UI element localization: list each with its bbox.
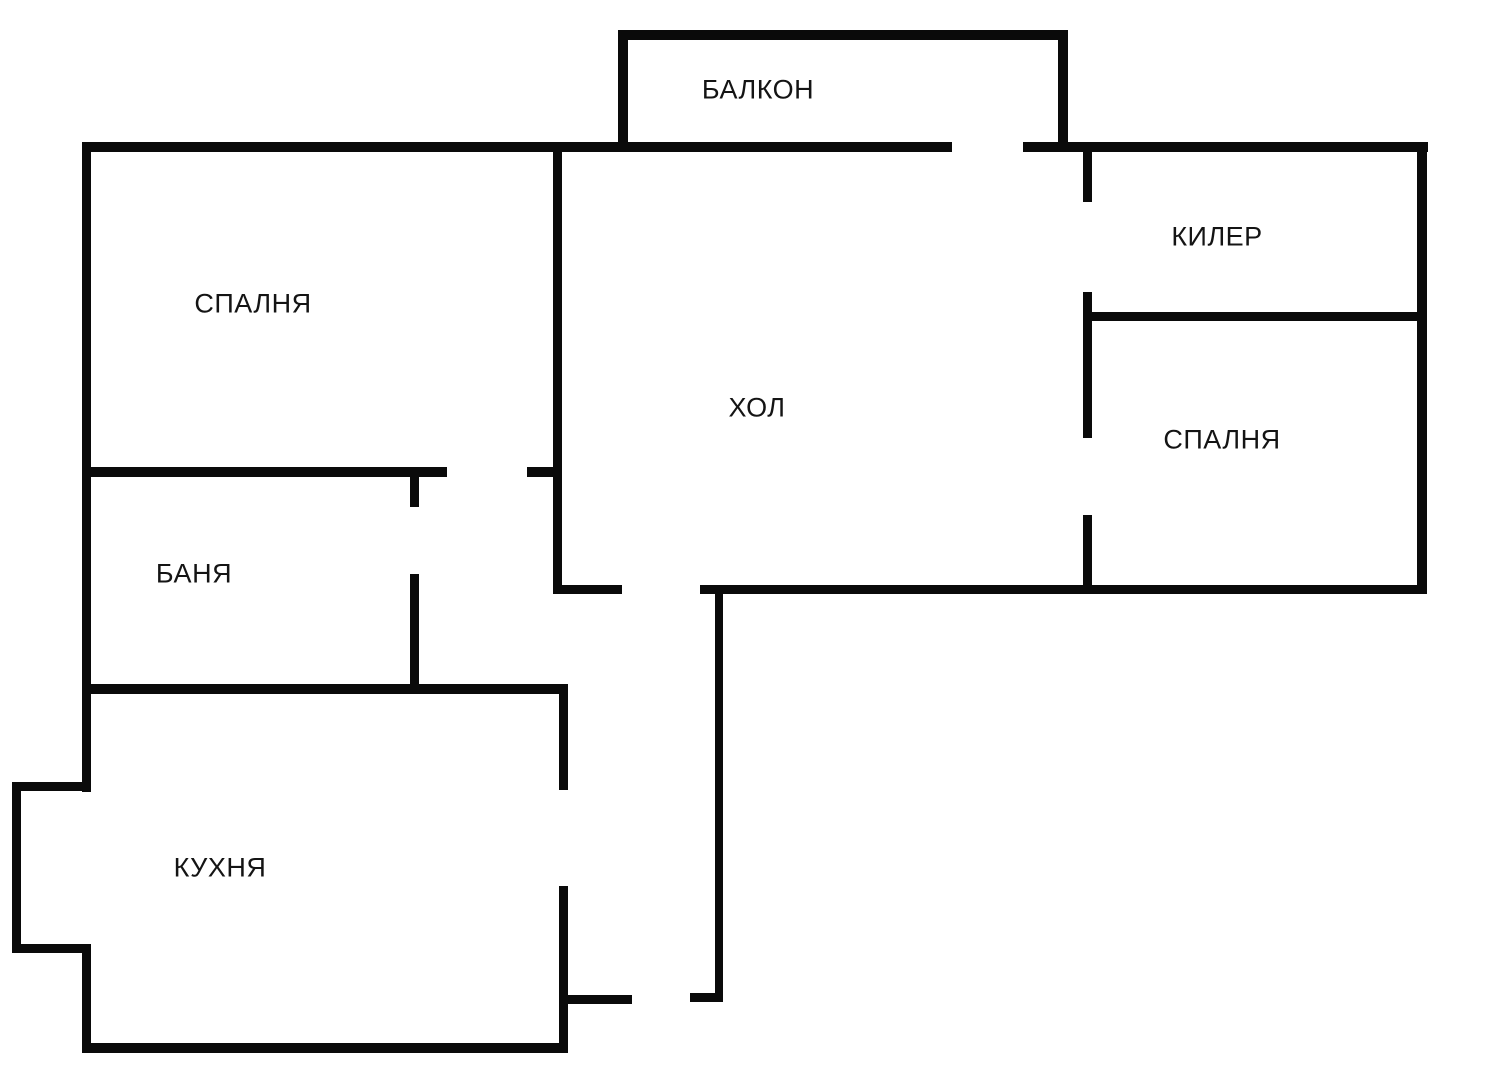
- room-label-balcony: БАЛКОН: [702, 75, 814, 106]
- wall-kitchen-right-upper: [559, 684, 568, 790]
- wall-kitchen-bump-left: [12, 782, 21, 953]
- wall-left-wall-lower: [82, 944, 91, 1053]
- wall-hall-bottom-main: [700, 585, 1423, 594]
- wall-balcony-top: [618, 30, 1068, 40]
- wall-bathroom-bottom-kitchen-top: [82, 684, 568, 694]
- wall-hall-bottom-foot: [553, 585, 622, 594]
- room-label-bedroom-left: СПАЛНЯ: [194, 289, 311, 320]
- wall-hall-right-wall-a: [1083, 142, 1092, 202]
- wall-kitchen-bump-top: [12, 782, 91, 791]
- wall-right-wall: [1417, 142, 1427, 594]
- wall-bathroom-right-jamb-upper: [410, 467, 419, 507]
- wall-bedroom-left-bottom-a: [82, 467, 447, 477]
- wall-kitchen-bottom: [82, 1043, 568, 1053]
- wall-entry-stub-left: [559, 995, 632, 1004]
- floor-plan: БАЛКОН СПАЛНЯ КИЛЕР ХОЛ СПАЛНЯ БАНЯ КУХН…: [0, 0, 1500, 1069]
- wall-top-wall-left-and-balcony-bottom: [82, 142, 952, 152]
- wall-bedroom-left-right-wall: [553, 142, 562, 594]
- wall-hall-right-wall-c: [1083, 515, 1092, 594]
- wall-kitchen-bump-bottom: [12, 944, 91, 953]
- room-label-kitchen: КУХНЯ: [174, 853, 267, 884]
- room-label-hall: ХОЛ: [728, 393, 785, 424]
- wall-balcony-right: [1058, 30, 1068, 152]
- wall-balcony-left: [618, 30, 628, 152]
- wall-bathroom-right-lower: [410, 574, 419, 689]
- room-label-bathroom: БАНЯ: [156, 559, 232, 590]
- wall-kitchen-right-lower: [559, 886, 568, 1052]
- room-label-closet: КИЛЕР: [1171, 222, 1262, 253]
- wall-corridor-wall: [715, 588, 723, 1002]
- room-label-bedroom-right: СПАЛНЯ: [1163, 425, 1280, 456]
- wall-closet-bottom-divider: [1087, 312, 1423, 321]
